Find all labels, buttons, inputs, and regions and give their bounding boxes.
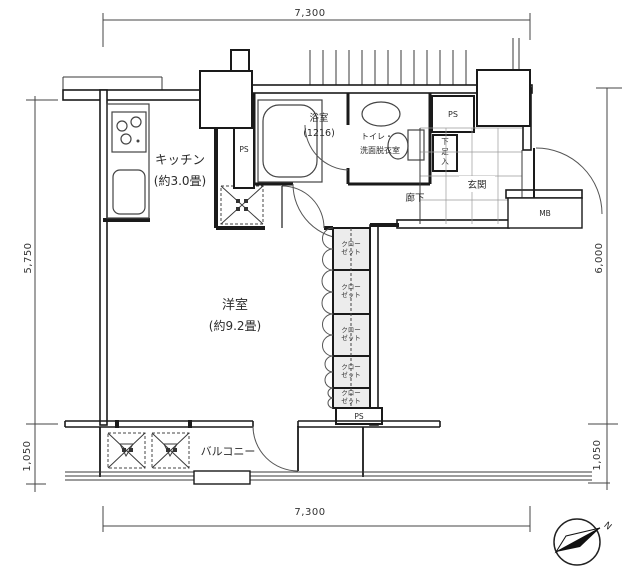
shoe-cabinet-char: 入 — [441, 157, 449, 166]
closet-label: クロー — [341, 363, 361, 371]
balcony-railing — [65, 472, 592, 480]
closet-column: クロー ゼット クロー ゼット クロー ゼット クロー ゼット クロー ゼット — [322, 228, 370, 408]
room-door-arc — [282, 186, 324, 228]
washroom-label-line2: 洗面脱衣室 — [360, 145, 400, 155]
pan-mark — [236, 199, 240, 203]
stove-outline — [112, 112, 146, 152]
dim-bottom-value: 7,300 — [294, 507, 325, 518]
hatch-mark — [129, 448, 133, 452]
floor-plan-drawing: 7,300 7,300 5,750 1,050 6,000 1,050 — [0, 0, 640, 569]
ps-box-bottom-label: PS — [354, 412, 364, 421]
kitchen-counter — [107, 104, 149, 218]
washing-machine-pan-icon — [221, 186, 263, 224]
bathroom-size-label: (1216) — [303, 128, 335, 139]
dim-left-value: 5,750 — [23, 242, 34, 273]
entrance-label: 玄関 — [467, 179, 486, 191]
pillar-stub — [231, 50, 249, 71]
closet-label: ゼット — [341, 396, 361, 405]
wall-room-right — [370, 225, 378, 425]
sink-icon — [113, 170, 145, 214]
wall-entry-bottom — [397, 220, 509, 228]
north-compass-icon: N — [554, 519, 613, 565]
wall-kitchen-top — [63, 90, 216, 100]
closet-doors — [322, 228, 333, 408]
burner — [117, 121, 127, 131]
wall-left — [100, 90, 107, 425]
wall-stub-lines — [63, 38, 519, 90]
hatch-cross — [108, 433, 145, 468]
stove-icon — [112, 112, 146, 152]
meter-box-label: MB — [539, 209, 551, 218]
main-room-size-label: (約9.2畳) — [209, 318, 261, 333]
shoe-cabinet: 下 足 入 — [433, 135, 457, 171]
closet-label: ゼット — [341, 333, 361, 342]
closet-label: クロー — [341, 240, 361, 248]
shoe-cabinet-char: 足 — [441, 147, 449, 156]
burner — [131, 117, 141, 127]
balcony-railing-box — [194, 471, 250, 484]
balcony-hatch-icon — [108, 433, 145, 468]
corridor-railing — [310, 50, 466, 88]
hatch-cross — [152, 433, 189, 468]
ps-box-left — [234, 128, 254, 188]
shoe-cabinet-char: 下 — [441, 137, 449, 146]
closet-label: クロー — [341, 283, 361, 291]
dim-top-value: 7,300 — [294, 8, 325, 19]
closet-label: ゼット — [341, 370, 361, 379]
pillar-right — [477, 70, 530, 126]
hatch-mark — [122, 448, 126, 452]
closet-label: ゼット — [341, 290, 361, 299]
wall-mb-top — [506, 190, 582, 198]
bathroom-label: 浴室 — [309, 112, 328, 124]
toilet-icon — [388, 130, 424, 160]
dim-right-line — [588, 88, 622, 490]
dim-left-line — [26, 96, 58, 492]
burner-knob — [137, 140, 140, 143]
compass-north-label: N — [601, 520, 613, 532]
hatch-mark — [166, 448, 170, 452]
closet-label: ゼット — [341, 247, 361, 256]
ps-box-left-label: PS — [239, 145, 249, 154]
pan-mark — [244, 199, 248, 203]
washbasin-icon — [362, 102, 400, 126]
kitchen-size-label: (約3.0畳) — [154, 173, 206, 188]
balcony-hatch-icon — [152, 433, 189, 468]
window-jamb — [188, 420, 192, 428]
main-room-label: 洋室 — [222, 297, 248, 313]
dim-right-sub-value: 1,050 — [592, 439, 603, 470]
toilet-tank — [408, 130, 424, 160]
interior-walls — [252, 93, 430, 184]
pillar-left — [200, 71, 252, 128]
balcony-area — [65, 420, 592, 484]
dim-right-value: 6,000 — [594, 242, 605, 273]
closet-label: クロー — [341, 326, 361, 334]
pan-cross — [221, 186, 263, 224]
hallway-label: 廊下 — [405, 192, 424, 204]
pan-mark — [236, 207, 240, 211]
pan-mark — [244, 207, 248, 211]
window-jamb — [115, 420, 119, 428]
balcony-door-arc — [253, 426, 298, 471]
dim-left-sub-value: 1,050 — [22, 440, 33, 471]
balcony-label: バルコニー — [201, 445, 256, 458]
floor-plan: 7,300 7,300 5,750 1,050 6,000 1,050 — [0, 0, 640, 569]
hatch-mark — [173, 448, 177, 452]
kitchen-label: キッチン — [155, 152, 205, 167]
burner — [121, 134, 131, 144]
ps-box-top-label: PS — [448, 110, 458, 119]
closet-label: クロー — [341, 389, 361, 397]
washroom-label-line1: トイレ・ — [361, 132, 393, 141]
